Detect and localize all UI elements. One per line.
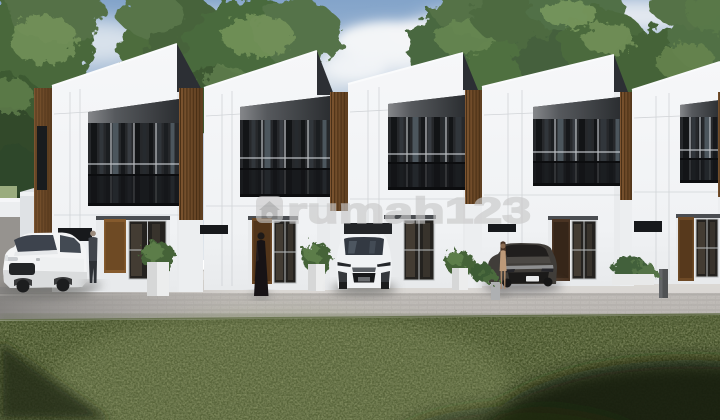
svg-text:rumah123: rumah123 bbox=[287, 190, 531, 231]
